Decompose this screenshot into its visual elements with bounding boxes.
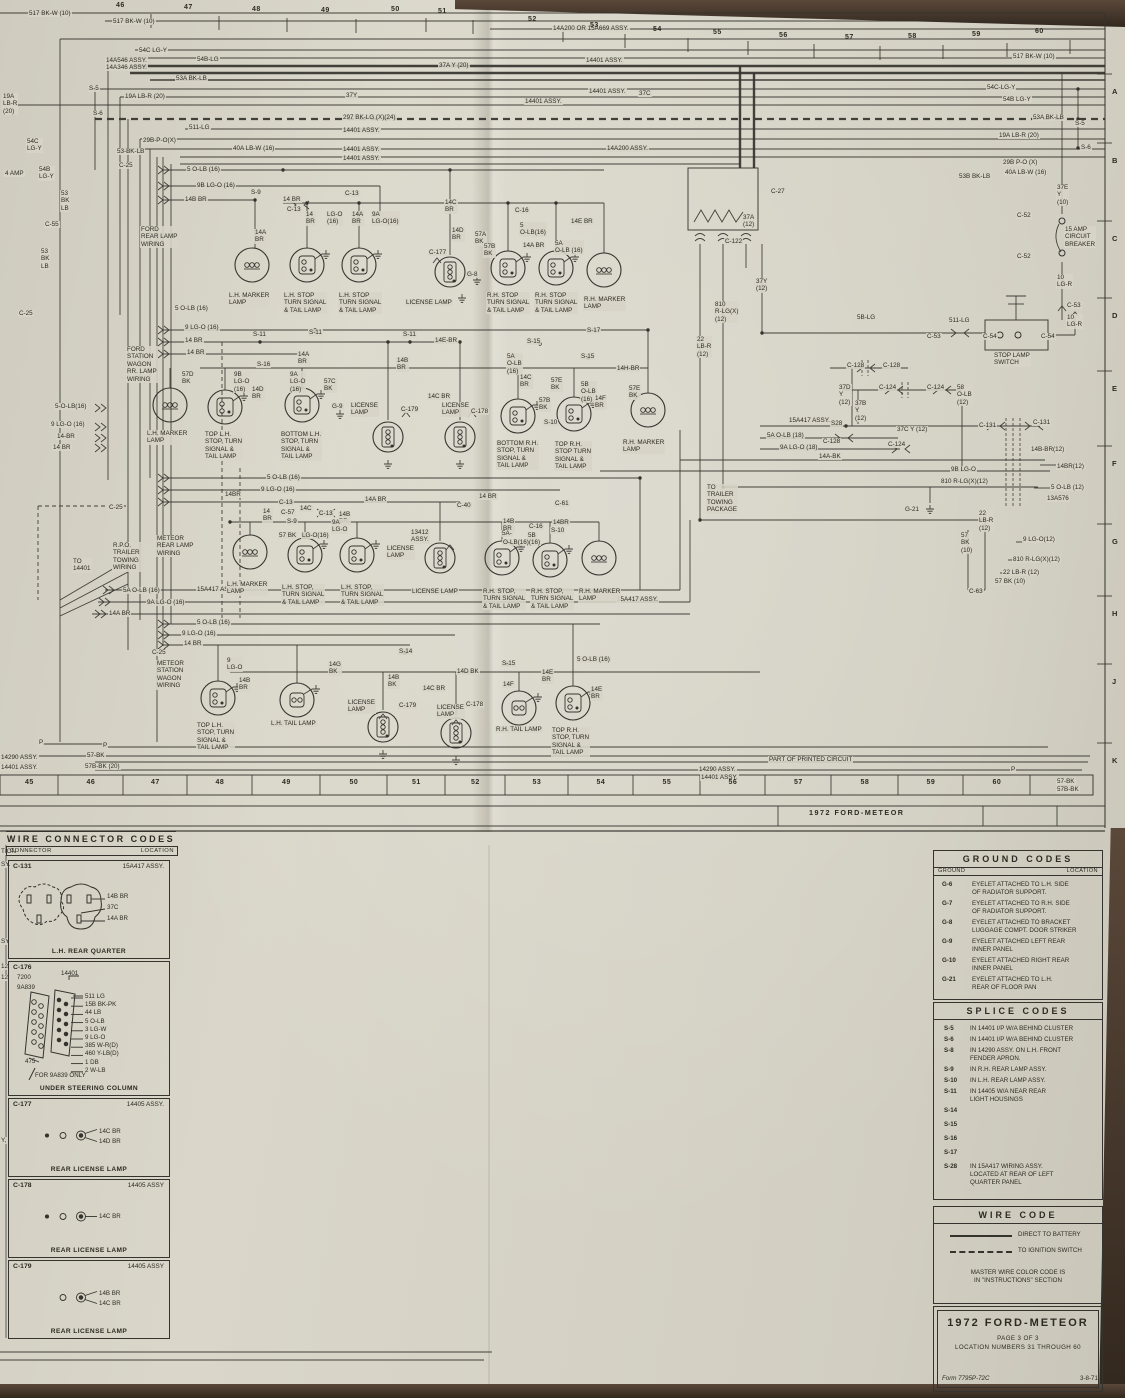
- wire-label: 14B-BR(12): [1030, 446, 1065, 453]
- wire-label: 5A O-LB (16): [122, 587, 161, 594]
- grid-letter: C: [1111, 235, 1118, 244]
- splice-code-row: S-16: [944, 1135, 957, 1143]
- wire-label: 40A LB-W (16): [232, 145, 275, 152]
- wire-label: 22 LB-R (12): [1002, 569, 1040, 576]
- splice-code-text: IN 14401 I/P W/A BEHIND CLUSTER: [970, 1025, 1100, 1033]
- wire-label: 14 BR: [282, 196, 302, 203]
- grid-letter: G: [1111, 538, 1119, 547]
- splice-code-id: S-14: [944, 1107, 957, 1114]
- wire-label: 14A200 ASSY.: [606, 145, 649, 152]
- wire-label: 517 BK-W (10): [28, 10, 72, 17]
- wire-label: LICENSE LAMP: [386, 545, 415, 560]
- form-number: Form 7795P-72C: [942, 1375, 989, 1383]
- splice-code-id: S-9: [944, 1066, 954, 1073]
- wire-label: 14G BK: [328, 661, 342, 676]
- wire-label: 10 LG-R: [1066, 314, 1083, 329]
- grid-number-top: 50: [390, 6, 401, 14]
- wire-label: 5A O-LB (16): [554, 240, 584, 255]
- wire-code-legend-line-solid: [950, 1235, 1012, 1237]
- wire-label: G-8: [466, 271, 479, 278]
- grid-number-top: 54: [652, 26, 663, 34]
- lamp-label: L.H. MARKER LAMP: [146, 430, 188, 445]
- grid-letter: J: [1111, 678, 1117, 687]
- wire-label: S-5: [1074, 120, 1086, 127]
- splice-code-text: IN 14290 ASSY. ON L.H. FRONT FENDER APRO…: [970, 1047, 1100, 1063]
- wire-label: 9 LG-O (16): [184, 324, 220, 331]
- wire-label: 14A BR: [108, 610, 131, 617]
- grid-number-bottom: 53: [532, 779, 543, 787]
- wire-label: C-177: [428, 249, 447, 256]
- wire-label: 37E Y (10): [1056, 184, 1069, 206]
- wire-label: 14D BR: [451, 227, 465, 242]
- splice-code-text: IN R.H. REAR LAMP ASSY.: [970, 1066, 1100, 1074]
- wire-label: LG-O (16): [326, 211, 343, 226]
- ground-code-id: G-21: [942, 976, 956, 983]
- wire-label: S-9: [250, 189, 262, 196]
- wire-label: C-124: [926, 384, 945, 391]
- lamp-label: BOTTOM L.H. STOP, TURN SIGNAL & TAIL LAM…: [280, 431, 322, 461]
- wire-label: C-128: [846, 362, 865, 369]
- splice-code-row: S-10IN L.H. REAR LAMP ASSY.: [944, 1077, 957, 1085]
- wire-label: C-179: [400, 406, 419, 413]
- ground-code-text: EYELET ATTACHED TO BRACKET LUGGAGE COMPT…: [972, 919, 1077, 935]
- wire-label: P: [1010, 766, 1016, 773]
- wire-label: 57B-BK: [1056, 786, 1080, 793]
- grid-number-top: 46: [115, 2, 126, 10]
- wire-label: 14A BR: [351, 211, 364, 226]
- connector-location-header: CONNECTOR LOCATION: [6, 846, 178, 856]
- wire-label: 4 AMP: [4, 170, 25, 177]
- lamp-label: TOP R.H. STOP, TURN SIGNAL & TAIL LAMP: [551, 727, 590, 757]
- splice-codes-box: SPLICE CODES S-5IN 14401 I/P W/A BEHIND …: [933, 1002, 1103, 1200]
- wire-label: C-13: [344, 190, 360, 197]
- sheet-location-info: LOCATION NUMBERS 31 THROUGH 60: [934, 1344, 1102, 1351]
- wire-label: C-61: [554, 500, 570, 507]
- grid-number-bottom: 58: [860, 779, 871, 787]
- lamp-label: BOTTOM R.H. STOP, TURN SIGNAL & TAIL LAM…: [496, 440, 539, 470]
- wire-label: S-6: [92, 110, 104, 117]
- wire-label: 9 LG-O: [226, 657, 243, 672]
- ground-code-text: EYELET ATTACHED RIGHT REAR INNER PANEL: [972, 957, 1069, 973]
- wire-label: C-131: [1032, 419, 1051, 426]
- ground-code-row: G-6EYELET ATTACHED TO L.H. SIDE OF RADIA…: [942, 881, 952, 889]
- wire-label: 53A BK-LB: [1032, 114, 1065, 121]
- wire-label: 14401 ASSY.: [342, 146, 381, 153]
- wire-label: 37C: [638, 90, 652, 97]
- wire-label: 53A BK-LB: [175, 75, 208, 82]
- wire-label: 57C BK: [323, 378, 337, 393]
- wire-label: S-15: [526, 338, 541, 345]
- wire-label: C-53: [1066, 302, 1082, 309]
- wire-label: TO TRAILER TOWING PACKAGE: [706, 484, 738, 514]
- wire-label: 14E BR: [541, 669, 554, 684]
- edge-fragment: Y,: [0, 1137, 7, 1144]
- splice-code-text: IN L.H. REAR LAMP ASSY.: [970, 1077, 1100, 1085]
- wire-code-legend-label: DIRECT TO BATTERY: [1018, 1231, 1081, 1239]
- ground-code-id: G-6: [942, 881, 952, 888]
- wire-label: 54B-LG: [196, 56, 220, 63]
- splice-code-row: S-11IN 14405 W/A NEAR REAR LIGHT HOUSING…: [944, 1088, 957, 1096]
- wire-label: 37A Y (20): [438, 62, 470, 69]
- wire-label: 9A LG-O (16): [146, 599, 185, 606]
- wire-label: 19A LB-R (20): [2, 93, 18, 115]
- wire-label: 57 BK (10): [994, 578, 1026, 585]
- grid-number-bottom: 59: [926, 779, 937, 787]
- wire-label: 22 LB-R (12): [978, 510, 994, 532]
- ground-code-row: G-21EYELET ATTACHED TO L.H. REAR OF FLOO…: [942, 976, 956, 984]
- splice-code-text: IN 14401 I/P W/A BEHIND CLUSTER: [970, 1036, 1100, 1044]
- wire-label: 5 O-LB (16): [174, 305, 209, 312]
- grid-number-top: 58: [907, 33, 918, 41]
- wire-label: 14 BR: [478, 493, 498, 500]
- splice-code-row: S-17: [944, 1149, 957, 1157]
- wire-label: 14E BR: [570, 218, 594, 225]
- splice-code-id: S-17: [944, 1149, 957, 1156]
- splice-code-id: S-11: [944, 1088, 957, 1095]
- wire-label: P: [102, 742, 108, 749]
- wire-label: 5 O-LB (16): [186, 166, 221, 173]
- wire-label: C-124: [878, 384, 897, 391]
- wire-label: PART OF PRINTED CIRCUIT: [768, 756, 853, 763]
- wire-label: 10 LG-R: [1056, 274, 1073, 289]
- wire-label: C-16: [514, 207, 530, 214]
- wire-label: FORD STATION WAGON RR. LAMP WIRING: [126, 346, 158, 383]
- grid-number-bottom: 52: [470, 779, 481, 787]
- wire-label: 14401 ASSY.: [588, 88, 627, 95]
- grid-number-top: 49: [320, 7, 331, 15]
- wire-label: C-54: [982, 333, 998, 340]
- wire-label: 14BR: [224, 491, 242, 498]
- wire-label: C-124: [887, 441, 906, 448]
- wire-label: 14BR(12): [1056, 463, 1085, 470]
- wire-label: 54C LG-Y: [26, 138, 43, 153]
- wire-label: C-122: [724, 238, 743, 245]
- ground-code-id: G-10: [942, 957, 956, 964]
- wire-label: 37Y: [345, 92, 358, 99]
- wire-label: 511-LG: [188, 124, 211, 131]
- splice-code-text: IN 14405 W/A NEAR REAR LIGHT HOUSINGS: [970, 1088, 1100, 1104]
- wire-label: 57-BK: [1056, 778, 1076, 785]
- grid-letter: F: [1111, 460, 1118, 469]
- wire-label: METEOR REAR LAMP WIRING: [156, 535, 194, 557]
- wire-label: C-52: [1016, 253, 1032, 260]
- ground-codes-title: GROUND CODES: [934, 851, 1102, 868]
- wire-label: C-16: [528, 523, 544, 530]
- wire-label: 53-BK-LB: [116, 148, 145, 155]
- sheet-page-info: PAGE 3 OF 3: [934, 1335, 1102, 1342]
- wire-label: 511-LG: [948, 317, 971, 324]
- wire-label: 9B LG-O (16): [233, 371, 250, 393]
- grid-number-top: 47: [183, 4, 194, 12]
- wire-label: 14401 ASSY.: [342, 155, 381, 162]
- wire-label: 5 O-LB (16): [576, 656, 611, 663]
- wire-label: 14401 ASSY.: [524, 98, 563, 105]
- wire-label: 14A BR: [364, 496, 387, 503]
- splice-code-text: IN 15A417 WIRING ASSY. LOCATED AT REAR O…: [970, 1163, 1100, 1186]
- connector-code-box-c-178: C-17814405 ASSYREAR LICENSE LAMP14C BR: [8, 1179, 170, 1258]
- location-col-label: LOCATION: [1067, 868, 1098, 874]
- wire-label: 19A LB-R (20): [124, 93, 166, 100]
- wire-code-legend-line-dashed: [950, 1251, 1012, 1253]
- wire-label: 37D Y (12): [838, 384, 852, 406]
- grid-letter: A: [1111, 88, 1118, 97]
- wire-label: 14A BR: [522, 242, 545, 249]
- wire-label: 5 O-LB(16): [519, 222, 547, 237]
- wire-label: 14D BR: [251, 386, 265, 401]
- wire-label: 15A417 ASSY.: [788, 417, 831, 424]
- ground-code-row: G-7EYELET ATTACHED TO R.H. SIDE OF RADIA…: [942, 900, 952, 908]
- wire-label: 9A LG-O (16): [289, 371, 306, 393]
- wire-label: C-178: [465, 701, 484, 708]
- wire-label: C-52: [1016, 212, 1032, 219]
- wire-label: 37C Y (12): [896, 426, 928, 433]
- wire-label: 14BR: [552, 519, 570, 526]
- splice-code-row: S-8IN 14290 ASSY. ON L.H. FRONT FENDER A…: [944, 1047, 954, 1055]
- wire-label: 14F: [502, 681, 515, 688]
- wire-label: S-9: [286, 518, 298, 525]
- ground-code-text: EYELET ATTACHED TO L.H. REAR OF FLOOR PA…: [972, 976, 1053, 992]
- wire-label: 14A-BK: [818, 453, 842, 460]
- lamp-label: LICENSE LAMP: [441, 402, 470, 417]
- lamp-label: LICENSE LAMP: [436, 704, 465, 719]
- lamp-label: R.H. MARKER LAMP: [622, 439, 665, 454]
- lamp-label: L.H. STOP TURN SIGNAL & TAIL LAMP: [338, 292, 382, 314]
- wire-label: 9A LG-O(16): [371, 211, 400, 226]
- grid-letter: B: [1111, 157, 1118, 166]
- splice-code-id: S-5: [944, 1025, 954, 1032]
- wire-label: C-53: [926, 333, 942, 340]
- wire-label: C-13: [286, 206, 302, 213]
- ground-code-text: EYELET ATTACHED TO L.H. SIDE OF RADIATOR…: [972, 881, 1069, 897]
- grid-letter: D: [1111, 312, 1118, 321]
- splice-code-row: S-14: [944, 1107, 957, 1115]
- splice-code-row: S-15: [944, 1121, 957, 1129]
- lamp-label: LICENSE LAMP: [350, 402, 379, 417]
- splice-code-id: S-8: [944, 1047, 954, 1054]
- wire-label: 14 BR: [52, 444, 72, 451]
- wire-label: G-21: [904, 506, 920, 513]
- splice-code-row: S-6IN 14401 I/P W/A BEHIND CLUSTER: [944, 1036, 954, 1044]
- wire-label: S-15: [501, 660, 516, 667]
- wire-label: 14 BR: [262, 508, 273, 523]
- wire-label: 5 O-LB (16): [266, 474, 301, 481]
- wire-label: 14C BR: [519, 374, 533, 389]
- wire-label: 14290 ASSY.: [0, 754, 39, 761]
- wire-label: 22 LB-R (12): [696, 336, 712, 358]
- wire-label: 14 BR: [305, 211, 316, 226]
- wire-label: LG-O(16): [301, 532, 330, 539]
- wire-label: 14A BR: [254, 229, 267, 244]
- wire-code-legend-label: TO IGNITION SWITCH: [1018, 1247, 1082, 1255]
- grid-number-top: 52: [527, 16, 538, 24]
- wire-label: STOP LAMP SWITCH: [993, 352, 1031, 367]
- connector-code-box-c-177: C-17714405 ASSY.REAR LICENSE LAMP14C BR1…: [8, 1098, 170, 1177]
- wire-label: 810 R-LG(X) (12): [714, 301, 739, 323]
- wire-label: C-131: [978, 422, 997, 429]
- ground-code-id: G-8: [942, 919, 952, 926]
- grid-number-bottom: 46: [86, 779, 97, 787]
- wire-label: 14A346 ASSY.: [105, 64, 148, 71]
- wire-label: 15A417 ASSY.: [616, 596, 659, 603]
- wire-label: 5 O-LB (12): [1050, 484, 1085, 491]
- lamp-label: R.H. STOP, TURN SIGNAL & TAIL LAMP: [530, 588, 574, 610]
- wire-label: 53B BK-LB: [958, 173, 991, 180]
- wire-label: G-9: [331, 403, 344, 410]
- wire-label: 54C LG-Y: [138, 47, 168, 54]
- wire-label: 58 O-LB (12): [956, 384, 973, 406]
- wire-label: S-11: [252, 331, 267, 338]
- wire-label: 40A LB-W (16): [1004, 169, 1047, 176]
- wire-label: 5B-LG: [856, 314, 876, 321]
- wire-label: C-25: [108, 504, 124, 511]
- wire-label: C-40: [456, 502, 472, 509]
- wire-label: C-178: [470, 408, 489, 415]
- lamp-label: TOP R.H. STOP TURN SIGNAL & TAIL LAMP: [554, 441, 592, 471]
- lamp-label: L.H. STOP TURN SIGNAL & TAIL LAMP: [283, 292, 327, 314]
- wire-label: C-25: [118, 162, 134, 169]
- lamp-label: R.H. MARKER LAMP: [578, 588, 621, 603]
- lamp-label: TOP L.H. STOP, TURN SIGNAL & TAIL LAMP: [196, 722, 235, 752]
- grid-number-top: 57: [844, 34, 855, 42]
- grid-number-top: 60: [1034, 28, 1045, 36]
- lamp-label: L.H. TAIL LAMP: [270, 720, 317, 727]
- lamp-label: R.H. MARKER LAMP: [583, 296, 626, 311]
- wire-label: 9 LG-O (16): [260, 486, 296, 493]
- wire-label: 54C-LG-Y: [986, 84, 1016, 91]
- wire-code-note: MASTER WIRE COLOR CODE IS IN "INSTRUCTIO…: [948, 1269, 1088, 1285]
- splice-code-id: S-15: [944, 1121, 957, 1128]
- grid-number-bottom: 47: [150, 779, 161, 787]
- lamp-label: LICENSE LAMP: [347, 699, 376, 714]
- ground-code-row: G-9EYELET ATTACHED LEFT REAR INNER PANEL: [942, 938, 952, 946]
- wire-label: 14 BR: [186, 349, 206, 356]
- wire-label: 14C: [299, 505, 313, 512]
- wire-label: S-17: [586, 327, 601, 334]
- grid-letter: K: [1111, 757, 1118, 766]
- wire-label: 13A576: [1046, 495, 1070, 502]
- grid-number-bottom: 55: [662, 779, 673, 787]
- wire-label: 14E BR: [590, 686, 603, 701]
- wire-label: 14C BR: [444, 199, 458, 214]
- wire-label: O-LB(16)(16): [502, 539, 541, 546]
- splice-code-id: S-10: [944, 1077, 957, 1084]
- wire-label: S-10: [543, 419, 558, 426]
- connector-code-box-c-131: C-13115A417 ASSY.L.H. REAR QUARTER14B BR…: [8, 860, 170, 959]
- wire-label: C-27: [770, 188, 786, 195]
- wire-code-box: WIRE CODE DIRECT TO BATTERYTO IGNITION S…: [933, 1206, 1103, 1304]
- splice-code-row: S-5IN 14401 I/P W/A BEHIND CLUSTER: [944, 1025, 954, 1033]
- wire-label: 14 BR: [184, 337, 204, 344]
- wire-label: 9 LG-O(12): [1022, 536, 1056, 543]
- wire-label: 14B BR: [184, 196, 208, 203]
- wire-label: 14H-BR: [616, 365, 640, 372]
- ground-code-row: G-10EYELET ATTACHED RIGHT REAR INNER PAN…: [942, 957, 956, 965]
- lamp-label: L.H. STOP, TURN SIGNAL & TAIL LAMP: [281, 584, 325, 606]
- wire-label: S-5: [88, 85, 100, 92]
- lamp-label: L.H. MARKER LAMP: [228, 292, 270, 307]
- wire-label: C-179: [398, 702, 417, 709]
- ground-codes-subheader: GROUND LOCATION: [934, 867, 1102, 876]
- lamp-label: R.H. STOP TURN SIGNAL & TAIL LAMP: [534, 292, 578, 314]
- wire-label: 14B BK: [387, 674, 400, 689]
- wire-label: R.P.O. TRAILER TOWING WIRING: [112, 542, 141, 572]
- wire-label: 14290 ASSY.: [698, 766, 737, 773]
- lamp-label: L.H. MARKER LAMP: [226, 581, 268, 596]
- wire-label: 810 R-LG(X)(12): [1012, 556, 1061, 563]
- wire-label: 57B BK: [483, 243, 496, 258]
- wire-label: 57B-BK (20): [84, 763, 121, 770]
- lamp-label: R.H. STOP TURN SIGNAL & TAIL LAMP: [486, 292, 530, 314]
- wire-label: 53 BK LB: [60, 190, 70, 212]
- title-block: 1972 FORD-METEOR PAGE 3 OF 3 LOCATION NU…: [933, 1306, 1103, 1392]
- wire-label: S-16: [256, 361, 271, 368]
- sheet-date: 3-8-71: [1080, 1375, 1098, 1383]
- connector-code-box-c-179: C-17914405 ASSYREAR LICENSE LAMP14B BR14…: [8, 1260, 170, 1339]
- wire-label: 5A O-LB (16): [506, 353, 523, 375]
- grid-number-top: 48: [251, 6, 262, 14]
- wire-label: 14B BR: [238, 677, 251, 692]
- wire-label: C-128: [882, 362, 901, 369]
- wire-label: 14C BR: [422, 685, 446, 692]
- ground-code-text: EYELET ATTACHED TO R.H. SIDE OF RADIATOR…: [972, 900, 1070, 916]
- wire-label: 9 LG-O (16): [181, 630, 217, 637]
- wire-label: C-13: [318, 510, 334, 517]
- lamp-label: R.H. TAIL LAMP: [495, 726, 543, 733]
- splice-codes-title: SPLICE CODES: [934, 1003, 1102, 1020]
- grid-letter: H: [1111, 610, 1118, 619]
- lamp-label: L.H. STOP, TURN SIGNAL & TAIL LAMP: [340, 584, 384, 606]
- wire-label: P: [38, 739, 44, 746]
- grid-number-top: 59: [971, 31, 982, 39]
- grid-letter: E: [1111, 385, 1118, 394]
- wire-label: 5A-: [501, 530, 513, 537]
- grid-number-bottom: 45: [24, 779, 35, 787]
- scanned-wiring-diagram: 517 BK-W (10)517 BK-W (10)14A200 OR 15A6…: [0, 0, 1125, 1398]
- wire-label: 297 BK-LG (X)(24): [342, 114, 397, 121]
- grid-number-bottom: 48: [215, 779, 226, 787]
- splice-code-id: S-28: [944, 1163, 957, 1170]
- wire-label: S-6: [1080, 144, 1092, 151]
- wire-label: 37Y (12): [755, 278, 768, 293]
- wire-label: 810 R-LG(X)(12): [940, 478, 989, 485]
- grid-number-top: 51: [437, 8, 448, 16]
- wire-label: C-25: [18, 310, 34, 317]
- wire-label: 14401 ASSY.: [585, 57, 624, 64]
- wire-label: 14F BR: [594, 395, 607, 410]
- wire-label: 15 AMP CIRCUIT BREAKER: [1064, 226, 1096, 248]
- wire-label: 57B BK: [538, 397, 551, 412]
- splice-code-row: S-9IN R.H. REAR LAMP ASSY.: [944, 1066, 954, 1074]
- wire-label: 14A BR: [297, 351, 310, 366]
- wire-label: 9A LG-O (18): [779, 444, 818, 451]
- grid-number-top: 55: [712, 29, 723, 37]
- grid-number-bottom: 49: [281, 779, 292, 787]
- wire-label: 57D BK: [181, 371, 195, 386]
- wire-label: S-14: [398, 648, 413, 655]
- wire-label: C-55: [44, 221, 60, 228]
- wire-label: 29B P-O (X): [1002, 159, 1038, 166]
- connector-code-box-c-176: C-176UNDER STEERING COLUMN72009A83914401…: [8, 961, 170, 1096]
- grid-number-top: 56: [778, 32, 789, 40]
- wire-label: 9 LG-O (16): [50, 421, 86, 428]
- grid-number-bottom: 57: [793, 779, 804, 787]
- wire-label: 14401 ASSY.: [342, 127, 381, 134]
- wire-label: C-128: [822, 438, 841, 445]
- sheet-title: 1972 FORD-METEOR: [934, 1317, 1102, 1329]
- ground-code-row: G-8EYELET ATTACHED TO BRACKET LUGGAGE CO…: [942, 919, 952, 927]
- splice-code-id: S-6: [944, 1036, 954, 1043]
- wire-label: 5 O-LB (16): [196, 619, 231, 626]
